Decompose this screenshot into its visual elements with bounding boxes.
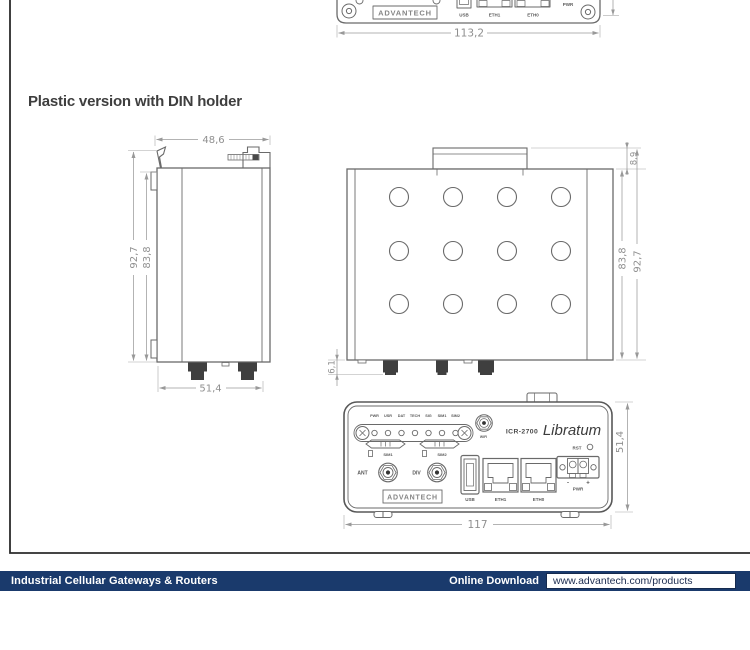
wifi-label: WIFI xyxy=(480,435,487,439)
dim-top-width: 48,6 xyxy=(202,135,224,146)
top-view-drawing: 8,9 83,8 92,7 6,1 xyxy=(328,142,647,386)
minus-mark: - xyxy=(567,481,569,487)
eth0-label: ETH0 xyxy=(527,13,539,18)
advantech-logo-box: ADVANTECH xyxy=(373,6,437,19)
antenna-connector-icon xyxy=(383,361,494,376)
dim-bottom-width: 51,4 xyxy=(199,383,221,394)
online-download-label: Online Download xyxy=(449,575,539,587)
led-label-tech: TECH xyxy=(410,414,421,418)
dim-width-front: 117 xyxy=(467,519,487,531)
led-label-pwr: PWR xyxy=(370,414,379,418)
dim-height-front: 51,4 xyxy=(615,431,626,453)
footer-bar: Industrial Cellular Gateways & Routers O… xyxy=(0,571,750,591)
dim-connector: 6,1 xyxy=(328,360,338,374)
side-view-drawing: 48,6 92,7 83,8 51,4 xyxy=(127,133,271,395)
eth1-label: ETH1 xyxy=(495,497,507,502)
dim-cutoff-right xyxy=(603,0,619,16)
din-tab-icon xyxy=(433,148,527,169)
footer-url-box: www.advantech.com/products xyxy=(546,573,736,589)
usb-label: USB xyxy=(465,497,475,502)
led-label-sim2: SIM2 xyxy=(451,414,460,418)
footer-category-label: Industrial Cellular Gateways & Routers xyxy=(11,575,218,587)
dim-51-4-front: 51,4 xyxy=(615,402,633,512)
led-label-dat: DAT xyxy=(398,414,406,418)
sim2-label: SIM2 xyxy=(437,452,447,457)
dim-113-2: 113,2 xyxy=(337,25,600,40)
dim-body-height-top: 83,8 xyxy=(618,247,629,269)
plus-mark: + xyxy=(586,481,590,487)
pwr-label: PWR xyxy=(563,2,574,7)
model-name: ICR-2700 xyxy=(506,429,538,436)
sim1-label: SIM1 xyxy=(383,452,393,457)
bottom-tab-icon xyxy=(222,363,229,367)
led-label-sig: SIG xyxy=(425,414,432,418)
dim-din-tab: 8,9 xyxy=(630,152,640,166)
div-label: DIV xyxy=(412,471,421,477)
rst-label: RST xyxy=(573,446,582,451)
eth0-label: ETH0 xyxy=(533,497,545,502)
led-label-sim1: SIM1 xyxy=(438,414,447,418)
eth1-label: ETH1 xyxy=(489,13,501,18)
ant-label: ANT xyxy=(357,471,367,477)
footer-url: www.advantech.com/products xyxy=(553,575,692,587)
dim-83-8-top: 83,8 xyxy=(616,171,630,359)
dim-83-8-side: 83,8 xyxy=(140,172,159,361)
pwr-label: PWR xyxy=(573,487,584,492)
led-label-usr: USR xyxy=(384,414,392,418)
dim-outer-height-side: 92,7 xyxy=(129,246,140,268)
compact-front-view-drawing: ADVANTECH USB ETH1 ETH0 PWR 113,2 xyxy=(337,0,619,40)
section-heading: Plastic version with DIN holder xyxy=(28,93,242,110)
front-view-drawing: PWR USR DAT TECH SIG SIM1 SIM2 SIM1 SIM2 xyxy=(344,393,633,532)
dim-body-height-side: 83,8 xyxy=(142,246,153,268)
series-name: Libratum xyxy=(543,422,601,439)
usb-label: USB xyxy=(459,13,469,18)
dim-width-compact: 113,2 xyxy=(454,28,484,40)
advantech-logo: ADVANTECH xyxy=(387,495,438,502)
advantech-logo: ADVANTECH xyxy=(378,9,432,18)
dim-48-6: 48,6 xyxy=(155,133,270,146)
dim-outer-height-top: 92,7 xyxy=(633,250,644,272)
